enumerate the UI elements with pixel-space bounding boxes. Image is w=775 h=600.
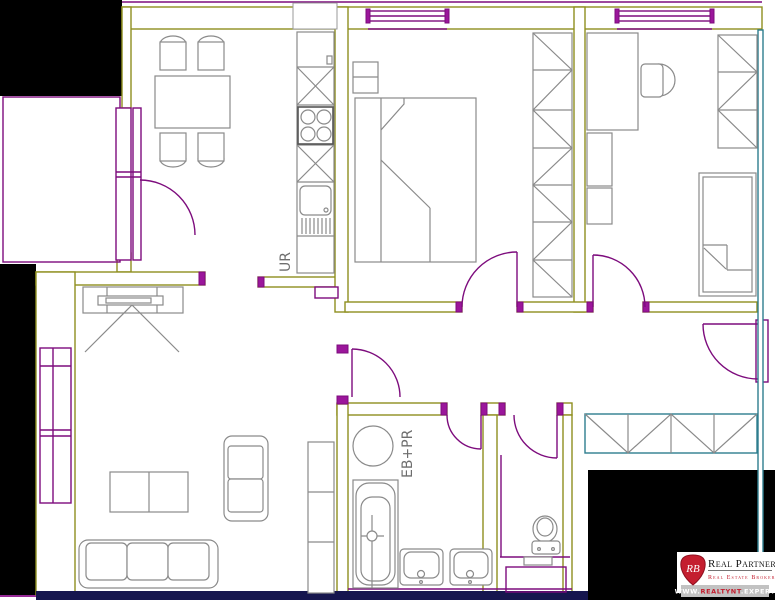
washing-machine xyxy=(353,426,393,466)
logo-website-domain: REALTYNT xyxy=(701,588,742,596)
wall-hallway-north-3 xyxy=(643,302,757,312)
stove xyxy=(298,107,333,144)
tub-drain xyxy=(367,531,377,541)
purple-fixtures xyxy=(199,272,649,592)
floorplan-svg: UR EB+PR RB Real Partners Real Estate Br… xyxy=(0,0,775,600)
sofa xyxy=(79,540,218,588)
dining-set xyxy=(155,36,230,167)
tv-stand xyxy=(83,287,183,352)
kitchen-counter xyxy=(297,32,334,273)
jamb xyxy=(441,403,447,415)
wardrobe-bedroom xyxy=(533,33,572,297)
door-living xyxy=(352,349,400,397)
chair-seat xyxy=(198,42,224,70)
jamb xyxy=(481,403,487,415)
jamb xyxy=(557,403,563,415)
label-kitchen-ur: UR xyxy=(278,252,294,272)
outside-black-left xyxy=(0,264,36,597)
logo-website: WWW.REALTYNT.EXPERT xyxy=(675,588,775,596)
chair-seat xyxy=(160,42,186,70)
window-living xyxy=(40,348,71,503)
double-bed xyxy=(353,62,476,262)
wall-kitchen-bedroom-divider xyxy=(335,7,348,312)
wall-kitchen-south xyxy=(258,277,345,287)
wall-wc-east xyxy=(563,415,572,595)
chair-seat xyxy=(160,133,186,161)
balcony-door-arc xyxy=(140,180,195,235)
desk xyxy=(587,33,638,224)
dining-table xyxy=(155,76,230,128)
logo-tagline: Real Estate Brokerage xyxy=(708,575,775,581)
label-bath-ebpr: EB+PR xyxy=(400,429,416,478)
shelf-cabinet xyxy=(308,442,334,593)
wall-living-bath-divider xyxy=(337,404,348,595)
jamb xyxy=(258,277,264,287)
coffee-table xyxy=(110,472,188,512)
door-bathroom xyxy=(447,415,481,449)
wall-dining-west xyxy=(122,7,131,108)
single-bed xyxy=(699,173,756,296)
wall-hallway-north-2 xyxy=(517,302,593,312)
toilet-shelf xyxy=(524,557,552,565)
wall-recess-kitchen xyxy=(293,3,337,29)
jamb xyxy=(643,302,649,312)
duct-shaft xyxy=(315,287,338,298)
sink-basin-right xyxy=(450,549,492,585)
jamb xyxy=(456,302,462,312)
jamb xyxy=(499,403,505,415)
desk-cabinet xyxy=(587,188,612,224)
sink-basin-left xyxy=(400,549,443,585)
wall-hallway-south-1 xyxy=(337,403,447,415)
wc-floor-zone xyxy=(506,567,566,592)
logo-company-name: Real Partners xyxy=(708,558,775,570)
tv xyxy=(98,296,163,305)
door-wc xyxy=(514,415,557,458)
balcony-outline xyxy=(3,97,120,262)
wardrobe-study xyxy=(718,35,757,148)
bathtub xyxy=(353,480,398,588)
floorplan-canvas: UR EB+PR RB Real Partners Real Estate Br… xyxy=(0,0,775,600)
wall-hallway-north-1 xyxy=(345,302,462,312)
hallway-closet xyxy=(585,414,757,453)
jamb xyxy=(337,396,348,404)
door-study xyxy=(593,255,645,307)
balcony-door-frame xyxy=(116,108,131,260)
wall-east-teal xyxy=(758,30,763,595)
wall-bedroom-study-divider xyxy=(574,7,585,312)
desk-cabinet xyxy=(587,133,612,186)
desk-chair xyxy=(641,64,675,97)
jamb xyxy=(517,302,523,312)
logo-website-tld: .EXPERT xyxy=(741,588,775,596)
brokerage-logo: RB Real Partners Real Estate Brokerage W… xyxy=(675,552,775,597)
balcony-door-leaf-unit xyxy=(133,108,141,260)
jamb xyxy=(337,345,348,353)
logo-monogram: RB xyxy=(685,563,700,575)
jamb xyxy=(587,302,593,312)
jamb xyxy=(199,272,205,285)
outside-black-top-left xyxy=(0,0,122,96)
logo-website-prefix: WWW. xyxy=(675,588,701,596)
loveseat xyxy=(224,436,268,521)
cabinet-handle xyxy=(327,56,332,64)
chair-seat xyxy=(198,133,224,161)
